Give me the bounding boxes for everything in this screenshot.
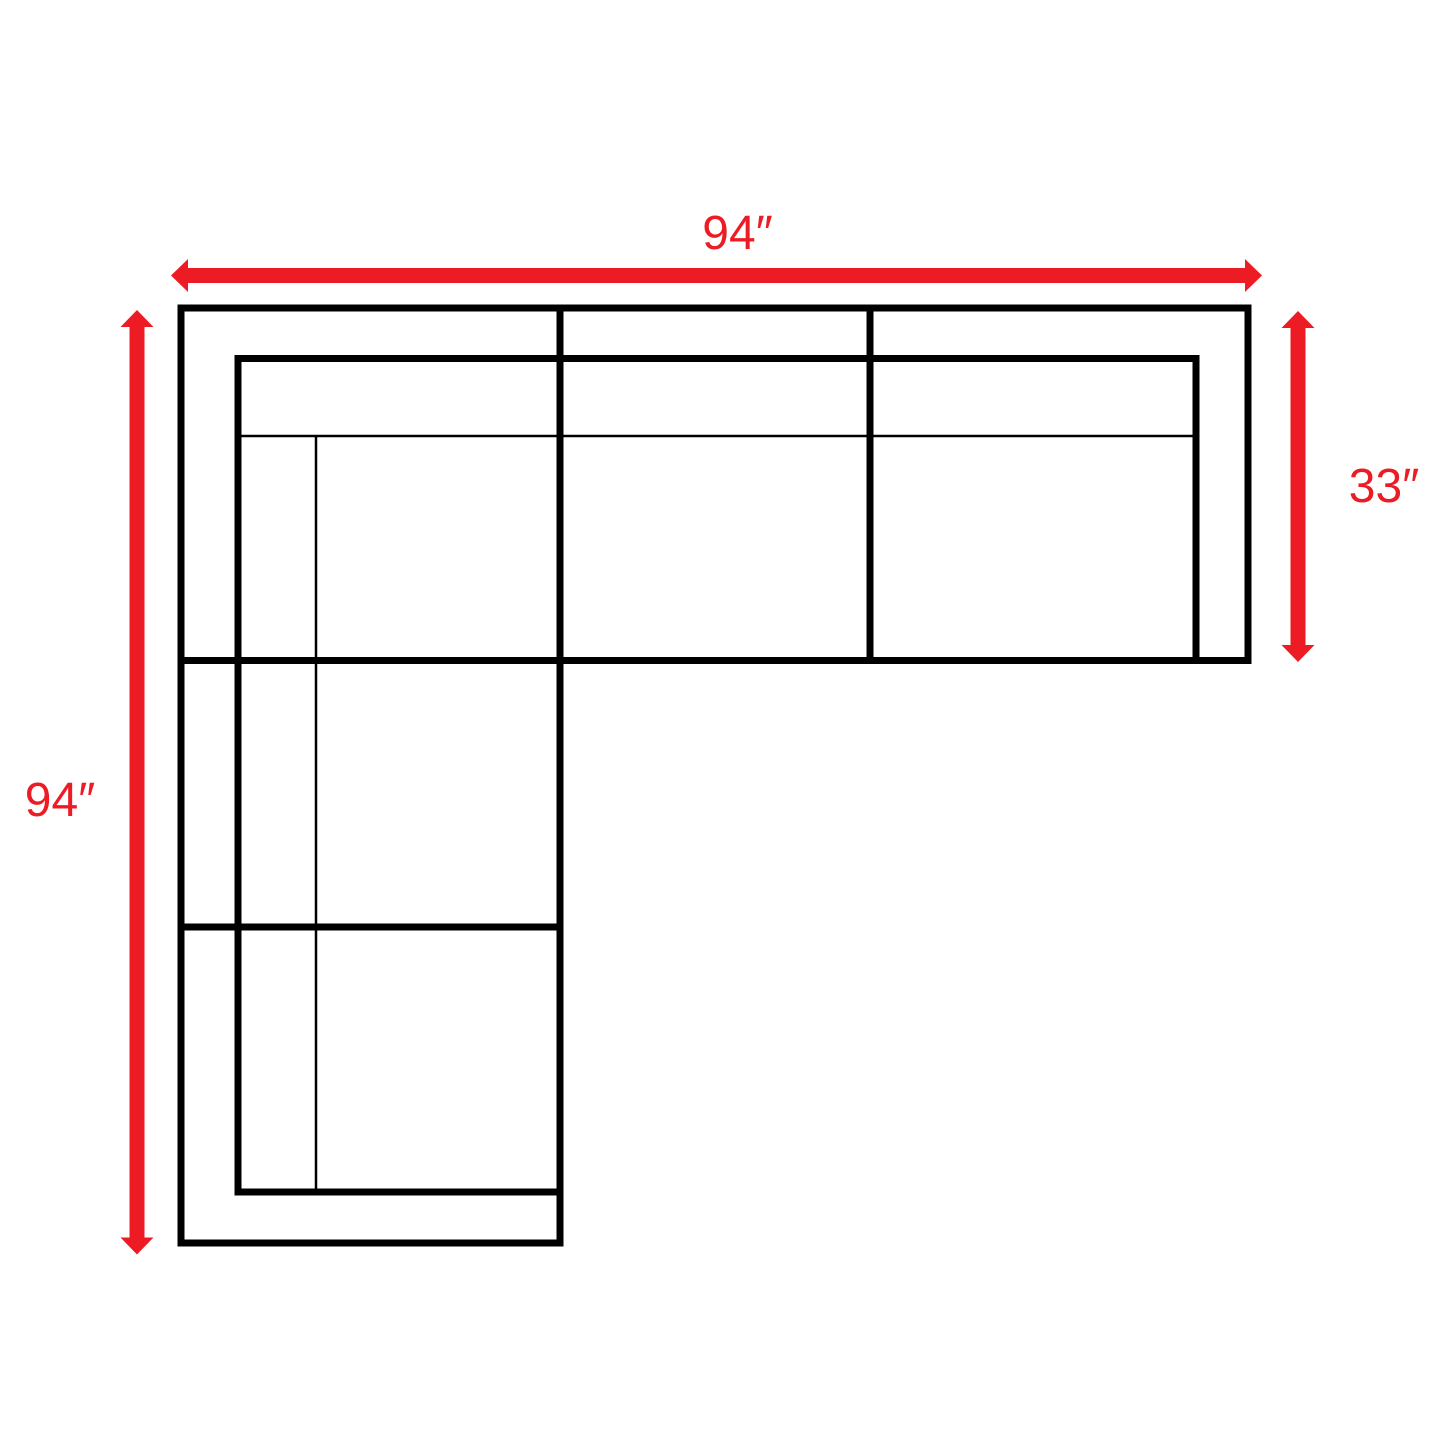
svg-text:94″: 94″ [702, 207, 772, 260]
svg-text:94″: 94″ [25, 774, 95, 827]
svg-text:33″: 33″ [1349, 460, 1419, 513]
